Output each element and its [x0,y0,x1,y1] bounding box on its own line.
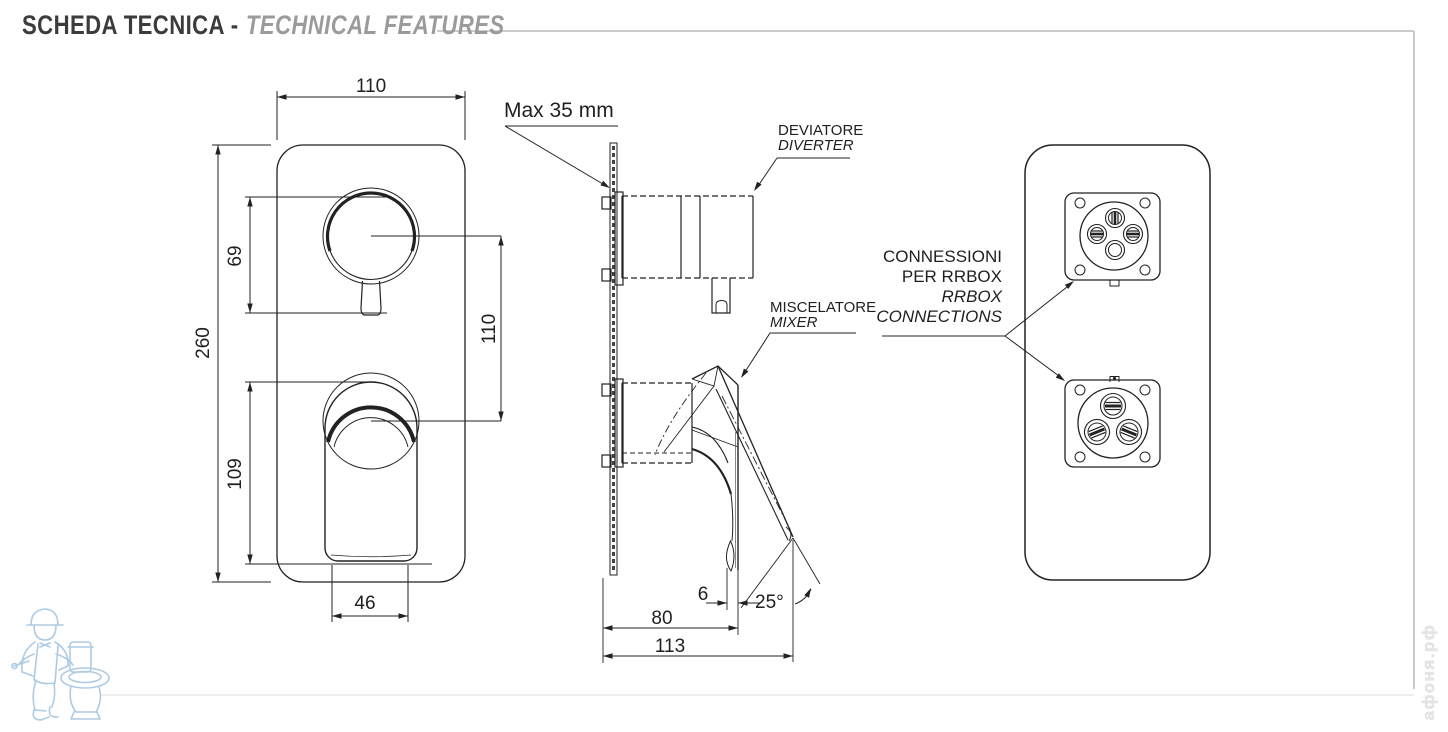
connections-label-line2: PER RRBOX [858,267,1002,287]
dim-centers-distance: 110 [479,299,501,359]
dim-depth-to-handle: 80 [632,608,692,630]
dim-plate-height: 260 [193,313,215,373]
top-box-port-right [1124,225,1143,244]
plumber-watermark-logo [12,609,109,720]
dim-diverter-span: 69 [225,226,247,286]
page-title: SCHEDA TECNICA -TECHNICAL FEATURES [22,10,611,41]
watermark-site-name: афоня.рф [1419,613,1439,731]
diverter-label-en: DIVERTER [778,138,863,153]
wall-thickness-note: Max 35 mm [504,99,614,123]
front-view-drawing [277,145,501,582]
bottom-box-port-left [1081,416,1114,449]
dim-handle-angle: 25° [755,592,784,614]
diverter-label-it: DEVIATORE [778,123,863,138]
connections-label-line3: RRBOX [858,287,1002,307]
top-box-port-left [1088,225,1107,244]
technical-sheet-page: SCHEDA TECNICA -TECHNICAL FEATURES 110 2… [0,0,1448,732]
front-view-dimensions [212,91,504,622]
header-rule [437,31,1414,689]
bottom-box-port-right [1113,416,1146,449]
dim-handle-width: 46 [335,593,395,615]
title-english: TECHNICAL FEATURES [246,10,505,40]
dim-handle-offset: 6 [688,584,718,606]
connections-label-line1: CONNESSIONI [858,247,1002,267]
connections-label-line4: CONNECTIONS [858,307,1002,327]
top-box-port-down [1106,241,1125,260]
connections-label: CONNESSIONI PER RRBOX RRBOX CONNECTIONS [858,247,1002,327]
diverter-label: DEVIATORE DIVERTER [778,123,863,153]
title-italian: SCHEDA TECNICA - [22,10,238,40]
technical-drawing-canvas [0,0,1448,732]
side-view-drawing [602,143,793,575]
top-box-port-up [1106,209,1125,228]
dim-plate-width: 110 [341,76,401,98]
dim-handle-span: 109 [225,444,247,504]
back-view-drawing [1025,145,1210,580]
bottom-box-port-top [1101,394,1126,419]
dim-depth-total: 113 [640,636,700,658]
